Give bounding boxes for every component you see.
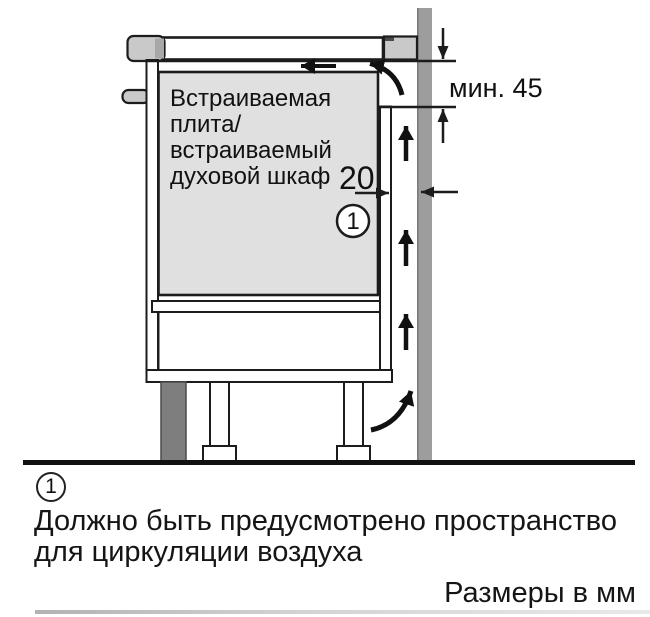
plinth-panel <box>161 382 186 461</box>
leg-left-stem <box>210 382 229 447</box>
appliance-label-line-3: встраиваемый <box>170 137 332 164</box>
drawer-compartment <box>159 312 381 370</box>
cabinet-bottom-panel <box>147 370 393 382</box>
wall-panel <box>417 8 432 463</box>
hob-trim-left-shadow <box>155 39 164 59</box>
worktop-section <box>163 38 383 60</box>
fixing-peg <box>123 90 150 103</box>
dim-label-20: 20 <box>339 160 375 196</box>
appliance-label-line-2: плита/ <box>170 111 241 138</box>
footnote-line-2: для циркуляции воздуха <box>34 537 617 568</box>
rear-vent-panel <box>380 107 391 371</box>
airflow-curved-bottom-arrow-icon <box>371 391 411 430</box>
footnote-marker-number: 1 <box>45 475 57 499</box>
hob-trim-right-notch <box>385 38 394 42</box>
leg-right-foot <box>337 446 370 462</box>
callout-number: 1 <box>346 208 359 235</box>
dim-label-min-45: мин. 45 <box>449 73 543 103</box>
leg-right-stem <box>344 382 363 447</box>
installation-diagram-page: Встраиваемая плита/ встраиваемый духовой… <box>0 0 650 617</box>
scan-artifact-line <box>35 610 650 614</box>
appliance-label-line-1: Встраиваемая <box>170 85 331 112</box>
footnote-line-1: Должно быть предусмотрено пространство <box>34 506 617 537</box>
appliance-label-line-4: духовой шкаф <box>170 163 330 190</box>
footnote-marker-circle: 1 <box>36 472 66 502</box>
cabinet-shelf <box>152 301 380 312</box>
diagram-canvas: Встраиваемая плита/ встраиваемый духовой… <box>0 0 650 466</box>
units-label: Размеры в мм <box>444 577 636 610</box>
footnote-text: Должно быть предусмотрено пространство д… <box>34 506 617 568</box>
leg-left-foot <box>203 446 236 462</box>
cabinet-side-panel-left <box>147 60 159 382</box>
